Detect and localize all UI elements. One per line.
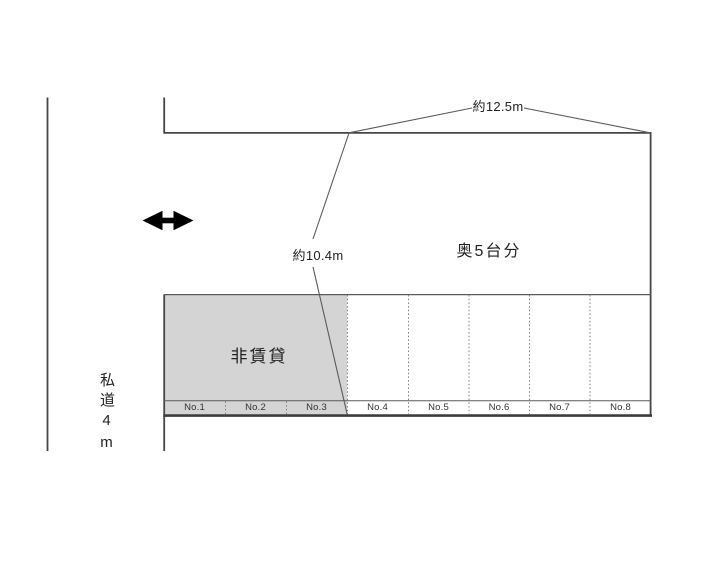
two-way-arrow-icon [143, 211, 194, 230]
depth-dimension-label: 約10.4m [293, 245, 344, 264]
parking-space-label: No.4 [347, 401, 408, 415]
parking-space-label: No.3 [286, 401, 347, 415]
back-area-label: 奥5台分 [457, 237, 522, 261]
diagram-lines [0, 0, 720, 561]
stall-dividers [348, 295, 591, 414]
parking-lot-diagram: 約12.5m 約10.4m 奥5台分 非賃貸 私道4m No.1 No.2 No… [0, 0, 720, 561]
parking-space-label: No.7 [529, 401, 590, 415]
non-rental-label: 非賃貸 [231, 342, 288, 367]
parking-space-label: No.5 [408, 401, 469, 415]
width-dimension-label: 約12.5m [473, 96, 524, 115]
private-road-label: 私道4m [95, 372, 117, 456]
parking-space-label: No.8 [590, 401, 651, 415]
parking-space-label: No.1 [164, 401, 225, 415]
parking-space-label: No.2 [225, 401, 286, 415]
parking-space-label: No.6 [469, 401, 529, 415]
